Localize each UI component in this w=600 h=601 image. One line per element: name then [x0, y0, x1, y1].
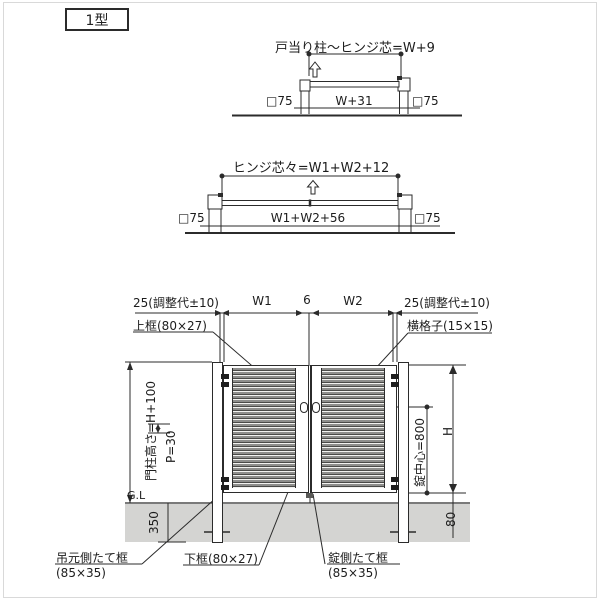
- label-hinge-stile-size: (85×35): [56, 566, 106, 580]
- hinge-bottom-left: [221, 485, 229, 490]
- gate-leaf-right: [311, 365, 397, 493]
- hinge-dot: [218, 193, 223, 197]
- hinge-top-right: [391, 374, 399, 379]
- label-cross-bar: 横格子(15×15): [407, 317, 493, 334]
- lock-knob-right: [312, 402, 320, 413]
- plan-single-dim-center: W+31: [330, 94, 378, 108]
- hinge-bottom-right: [391, 477, 399, 482]
- plan-double-title: ヒンジ芯々=W1+W2+12: [228, 157, 394, 176]
- dim-w2: W2: [339, 294, 367, 308]
- gate-leaf-left: [223, 365, 309, 493]
- plan-single-title: 戸当り柱〜ヒンジ芯=W+9: [272, 37, 438, 56]
- leaf-meeting-line: [310, 365, 312, 493]
- type-label: 1型: [86, 10, 109, 30]
- hinge-bottom-right: [391, 485, 399, 490]
- plan-double-dim-center: W1+W2+56: [262, 211, 354, 225]
- label-bottom-rail: 下框(80×27): [184, 550, 258, 567]
- hinge-dot: [397, 193, 402, 197]
- swing-direction-arrow: [310, 62, 321, 77]
- dim-w1: W1: [248, 294, 276, 308]
- hinge-bottom-left: [221, 477, 229, 482]
- catalog-drawing-page: { "type_label": "1型", "plan_single": { "…: [0, 0, 600, 601]
- lock-knob-left: [300, 402, 308, 413]
- plan-single-dim-left: □75: [266, 94, 293, 108]
- plan-double-dim-left: □75: [178, 211, 205, 225]
- label-post-height: 門柱高さ=H+100: [142, 381, 159, 481]
- label-lock-stile: 錠側たて框: [328, 549, 388, 566]
- plan-single-dim-right: □75: [412, 94, 439, 108]
- label-height: H: [441, 427, 455, 436]
- type-label-box: 1型: [65, 8, 129, 31]
- hinge-top-left: [221, 374, 229, 379]
- label-ground-line: G.L: [127, 489, 145, 502]
- hinge-top-right: [391, 382, 399, 387]
- plan-double-dim-right: □75: [414, 211, 441, 225]
- drop-bolt: [306, 493, 313, 498]
- label-lock-center: 錠中心=800: [411, 418, 428, 487]
- dim-gap: 6: [298, 293, 316, 307]
- elevation-ground-lines: [125, 503, 470, 532]
- hinge-dot: [397, 76, 402, 80]
- gate-post-right: [398, 362, 409, 543]
- label-pitch: P=30: [164, 430, 178, 463]
- louvre-panel-right: [321, 368, 385, 488]
- label-embed-depth: 350: [147, 511, 161, 534]
- label-bottom-clearance: 80: [444, 512, 458, 527]
- louvre-panel-left: [232, 368, 296, 488]
- dim-right-adjust: 25(調整代±10): [404, 294, 490, 311]
- gate-post-left: [212, 362, 223, 543]
- label-hinge-stile: 吊元側たて框: [56, 549, 128, 566]
- hinge-top-left: [221, 382, 229, 387]
- label-lock-stile-size: (85×35): [328, 566, 378, 580]
- dim-left-adjust: 25(調整代±10): [133, 294, 219, 311]
- label-top-rail: 上框(80×27): [133, 317, 207, 334]
- swing-direction-arrow: [308, 181, 319, 195]
